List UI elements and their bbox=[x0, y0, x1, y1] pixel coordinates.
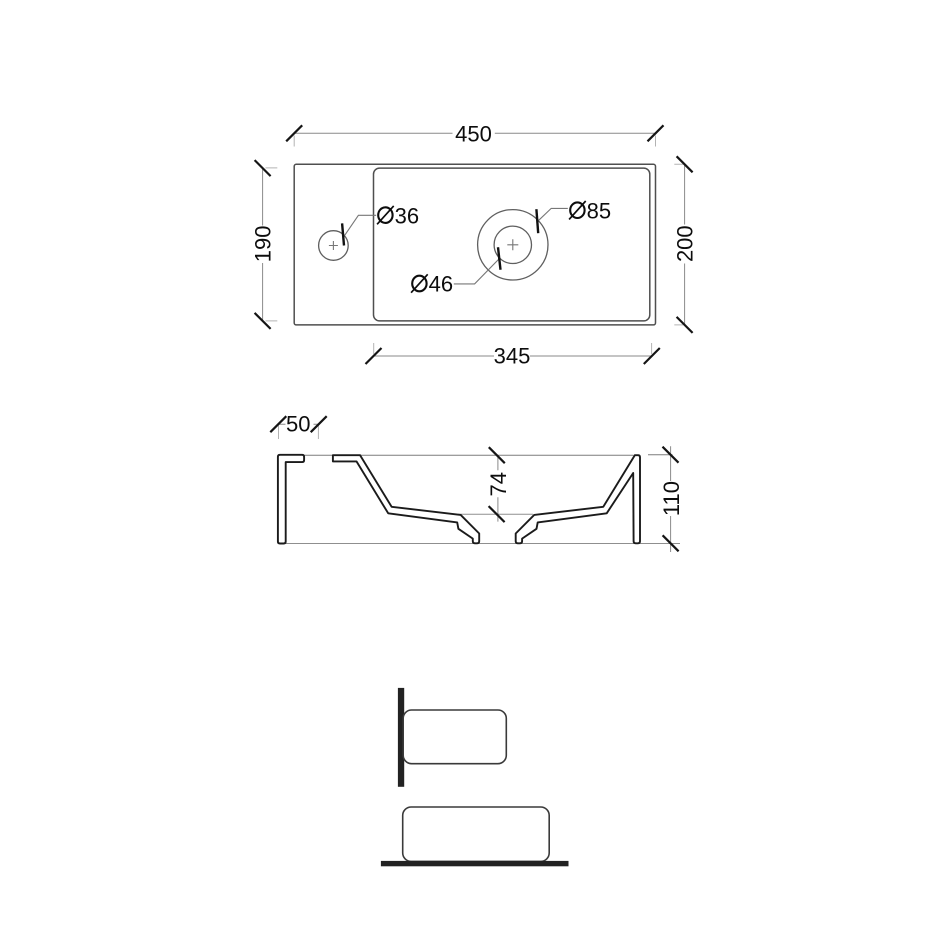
svg-text:85: 85 bbox=[587, 198, 611, 223]
svg-text:110: 110 bbox=[659, 481, 684, 516]
svg-text:74: 74 bbox=[486, 472, 511, 496]
svg-text:345: 345 bbox=[494, 343, 531, 368]
svg-text:50: 50 bbox=[286, 411, 310, 436]
svg-text:450: 450 bbox=[455, 121, 492, 146]
svg-text:190: 190 bbox=[251, 226, 276, 263]
svg-text:200: 200 bbox=[673, 225, 698, 262]
svg-text:36: 36 bbox=[395, 203, 419, 228]
svg-text:46: 46 bbox=[429, 272, 453, 297]
